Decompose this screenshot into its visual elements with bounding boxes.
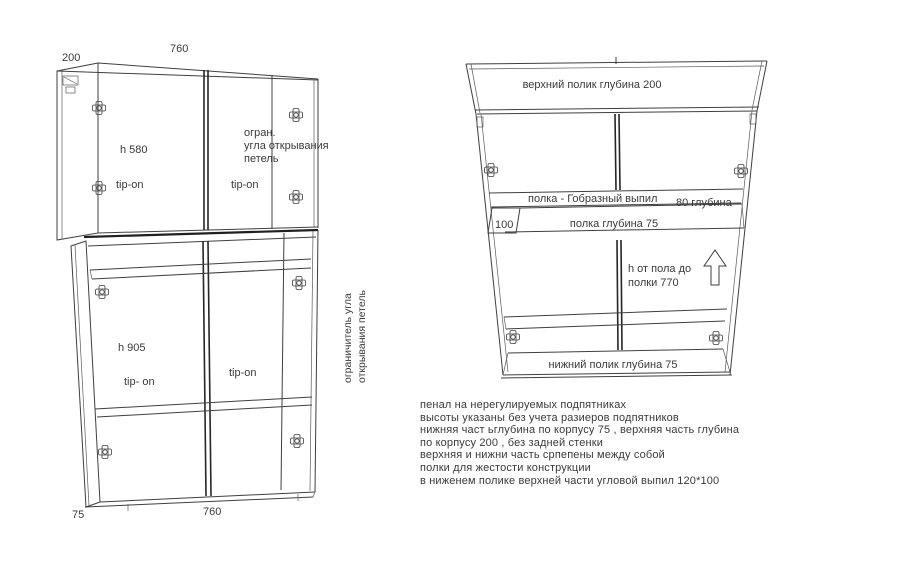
note-line: верхняя и нижни часть српепены между соб… (420, 449, 750, 462)
hinge-icon (290, 109, 303, 122)
cut-shelf-label: полка - Гобразный выпил (528, 193, 657, 205)
front-view: 200 760 h 580 tip-on tip-on огран. угла … (57, 43, 368, 521)
hinge-icon (710, 332, 723, 345)
hinge-icon (291, 435, 304, 448)
notes-block: пенал на нерегулируемых подпятниках высо… (420, 399, 750, 487)
note-line: по корпусу 200 , без задней стенки (420, 437, 750, 450)
hinge-note-line3: петель (244, 153, 279, 165)
dim-top-width-label: 760 (170, 43, 188, 55)
lower-left-door-label: tip- on (124, 376, 155, 388)
cabinet-junction-line (84, 230, 318, 237)
lower-cabinet-outline (71, 230, 318, 511)
lower-right-door-label: tip-on (229, 367, 257, 379)
note-line: полки для жестости конструкции (420, 462, 750, 475)
lower-section (504, 240, 727, 350)
middle-shelf-label: полка глубина 75 (570, 218, 658, 230)
hinge-icon (507, 331, 520, 344)
page: 200 760 h 580 tip-on tip-on огран. угла … (0, 0, 916, 576)
hinge-icon (96, 286, 109, 299)
upper-doors-interior (615, 114, 620, 190)
technical-drawing: 200 760 h 580 tip-on tip-on огран. угла … (0, 0, 916, 576)
hinge-note-line2: угла открывания (244, 140, 329, 152)
hinge-icon (290, 191, 303, 204)
top-shelf-label: верхний полик глубина 200 (523, 79, 662, 91)
up-arrow-icon (704, 250, 726, 285)
perspective-view: верхний полик глубина 200 полка - Гобраз… (466, 57, 767, 378)
bottom-shelf-label: нижний полик глубина 75 (548, 359, 677, 371)
note-line: пенал на нерегулируемых подпятниках (420, 399, 750, 412)
dim-bottom-depth-label: 75 (72, 509, 84, 521)
side-note-line1: ограничитель угла (342, 293, 354, 383)
dim-top-depth-label: 200 (62, 52, 80, 64)
hinge-icon (293, 277, 306, 290)
hinge-icon (93, 102, 106, 115)
cut-shelf-depth-label: 80 глубина (676, 197, 733, 209)
side-note-line2: открывания петель (356, 290, 368, 383)
shelf-height-note-line1: h от пола до (628, 263, 691, 275)
cut-size-label: 100 (495, 219, 513, 231)
upper-left-door-label: tip-on (116, 179, 144, 191)
hinge-icon (99, 446, 112, 459)
upper-right-door-label: tip-on (231, 179, 259, 191)
note-line: в ниженем полике верхней части угловой в… (420, 475, 750, 488)
upper-height-label: h 580 (120, 144, 148, 156)
note-line: высоты указаны без учета разиеров подпят… (420, 412, 750, 425)
hinge-icon (93, 182, 106, 195)
note-line: нижняя част ьглубина по корпусу 75 , вер… (420, 424, 750, 437)
dim-bottom-width-label: 760 (203, 506, 221, 518)
lower-height-label: h 905 (118, 342, 146, 354)
shelf-height-note-line2: полки 770 (628, 277, 679, 289)
hinge-note-line1: огран. (244, 127, 276, 139)
